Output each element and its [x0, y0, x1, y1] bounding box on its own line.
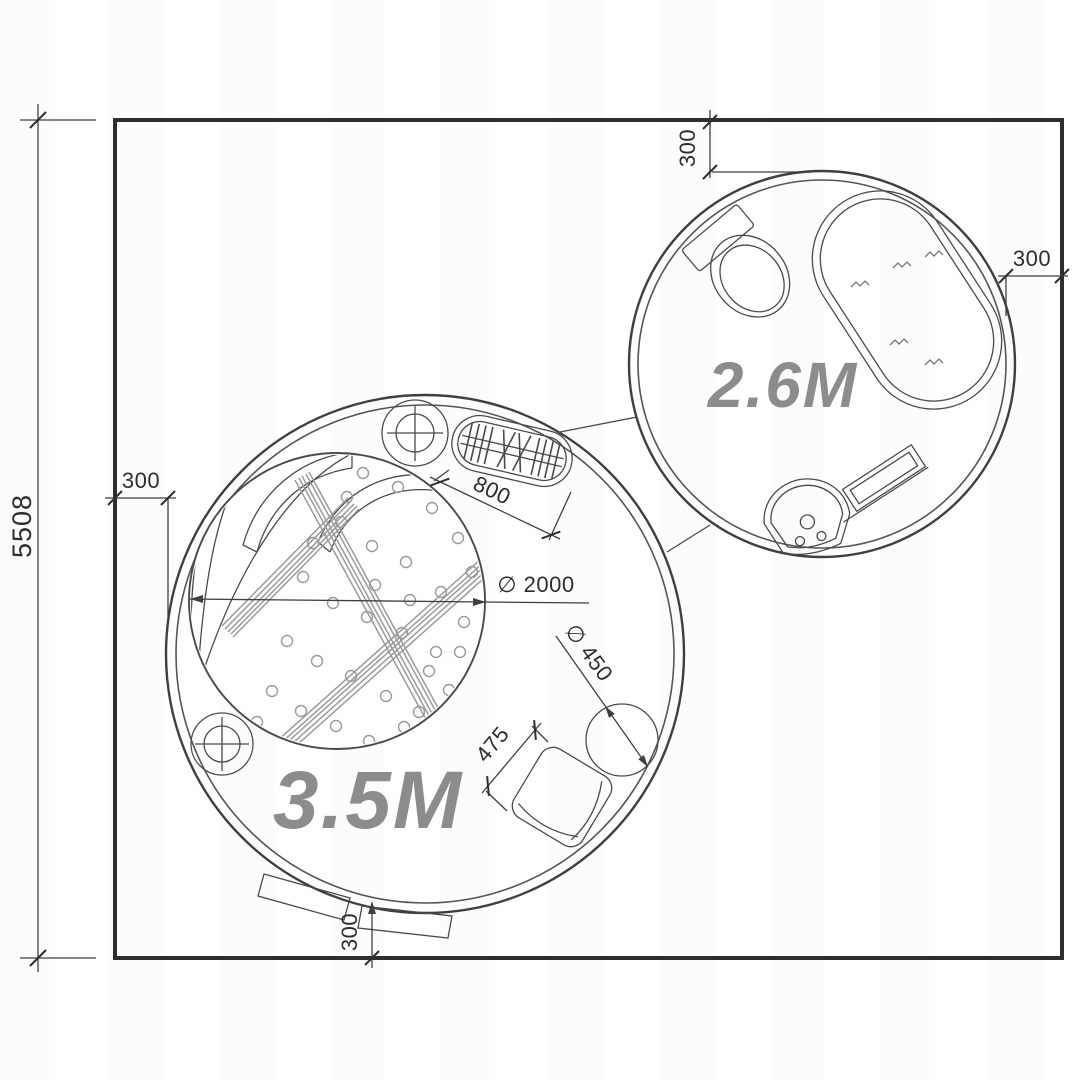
room-label-2-6m: 2.6M — [707, 349, 858, 421]
room-label-3-5m: 3.5M — [273, 755, 463, 846]
armchair — [507, 742, 617, 852]
side-table: ∅ 450 — [556, 619, 658, 776]
side-table-diameter-label: ∅ 450 — [560, 619, 618, 686]
floor-plan-canvas: 5508 — [0, 0, 1080, 1080]
entrance-clearance-label: 300 — [337, 913, 362, 951]
site-height-label: 5508 — [7, 494, 37, 558]
radiator — [446, 410, 577, 492]
corridor — [560, 417, 710, 552]
dimension-armchair: 475 — [470, 720, 548, 811]
dimension-site-height: 5508 — [7, 104, 96, 972]
crosshair-marker-bottom — [191, 713, 253, 775]
clearance-top-label: 300 — [675, 129, 700, 167]
clearance-right-label: 300 — [1013, 246, 1051, 271]
water-squiggles — [851, 251, 943, 365]
wall-shelf — [828, 444, 928, 522]
toilet — [681, 204, 806, 333]
sink — [759, 473, 855, 559]
radiator-length-label: 800 — [470, 471, 515, 510]
dimension-clearance-right: 300 — [998, 246, 1069, 316]
bed-diameter-label: ∅ 2000 — [497, 572, 574, 597]
crosshair-marker-top — [382, 400, 448, 466]
clearance-left-label: 300 — [122, 468, 160, 493]
round-bed — [189, 452, 491, 800]
armchair-width-label: 475 — [470, 722, 514, 767]
